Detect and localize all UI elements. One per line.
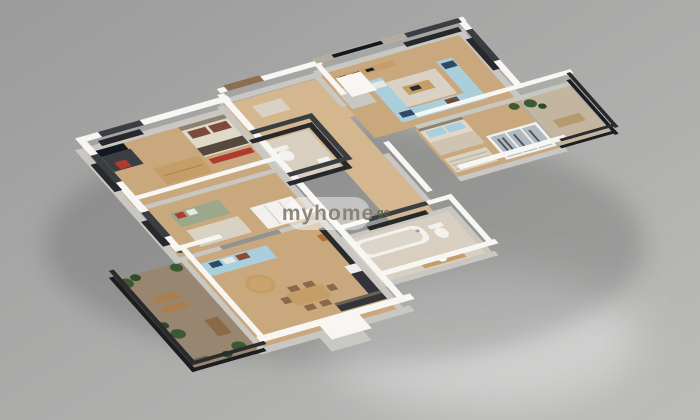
floor-plan-canvas: Bedroom Second bedroom	[0, 0, 700, 420]
watermark-brand: myhome	[282, 202, 374, 225]
floor-plan-render: Bedroom Second bedroom	[0, 0, 700, 420]
watermark-domain: .ge	[374, 207, 390, 219]
